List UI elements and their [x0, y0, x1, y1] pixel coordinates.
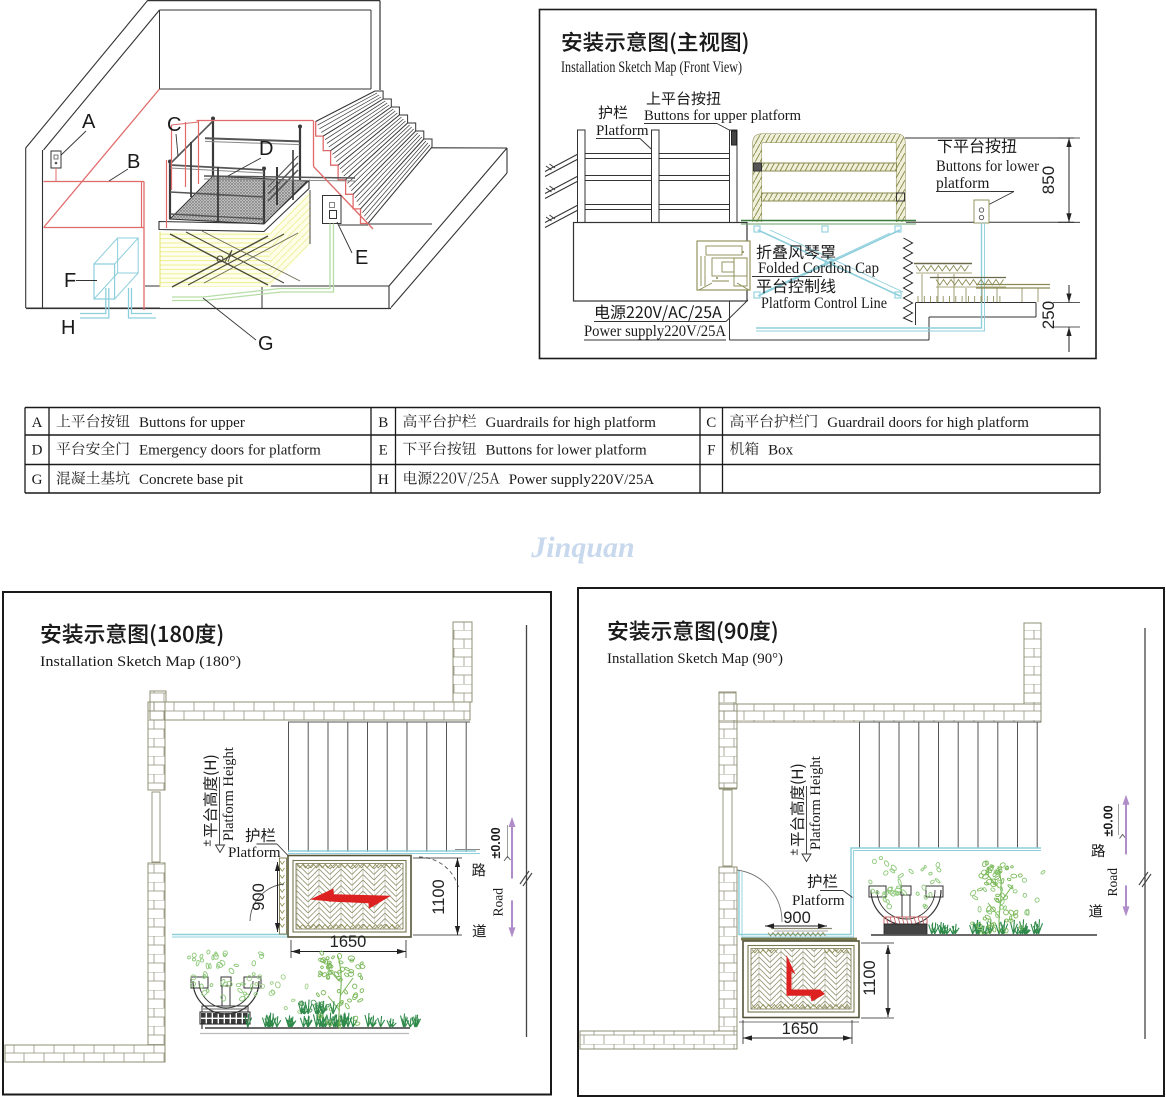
- svg-text:1100: 1100: [861, 960, 879, 995]
- svg-text:±: ±: [200, 840, 214, 847]
- svg-text:G: G: [258, 333, 274, 355]
- svg-text:900: 900: [783, 909, 811, 927]
- svg-text:E: E: [355, 247, 368, 269]
- svg-text:C: C: [706, 415, 716, 431]
- svg-text:Buttons for upper platform: Buttons for upper platform: [644, 108, 801, 124]
- svg-text:Power supply220V/25A: Power supply220V/25A: [509, 472, 655, 488]
- svg-text:B: B: [378, 415, 388, 431]
- svg-text:B: B: [127, 151, 140, 173]
- svg-text:±0.00: ±0.00: [489, 827, 503, 858]
- svg-text:1650: 1650: [330, 933, 367, 951]
- svg-text:Platform Height: Platform Height: [221, 747, 237, 841]
- svg-text:Platform Height: Platform Height: [808, 756, 824, 850]
- svg-text:F: F: [64, 270, 76, 292]
- svg-text:D: D: [32, 443, 43, 459]
- svg-text:Platform: Platform: [596, 123, 649, 139]
- svg-text:Installation Sketch Map (90°): Installation Sketch Map (90°): [607, 651, 783, 667]
- svg-text:C: C: [167, 114, 181, 136]
- svg-text:Platform: Platform: [228, 845, 281, 861]
- svg-text:Installation Sketch Map (Front: Installation Sketch Map (Front View): [561, 59, 742, 76]
- svg-text:Platform: Platform: [792, 893, 845, 909]
- svg-text:A: A: [32, 415, 43, 431]
- svg-text:F: F: [707, 443, 715, 459]
- svg-text:platform: platform: [936, 175, 989, 192]
- svg-text:E: E: [379, 443, 388, 459]
- svg-text:±: ±: [787, 849, 801, 856]
- svg-text:G: G: [32, 472, 43, 488]
- svg-text:Buttons for lower: Buttons for lower: [936, 158, 1040, 175]
- svg-text:H: H: [378, 472, 389, 488]
- svg-text:850: 850: [1039, 166, 1058, 194]
- svg-text:Buttons for upper: Buttons for upper: [139, 415, 245, 431]
- svg-text:1650: 1650: [782, 1020, 819, 1038]
- svg-text:A: A: [82, 111, 96, 133]
- svg-text:Road: Road: [1105, 868, 1120, 897]
- svg-text:900: 900: [250, 883, 268, 911]
- svg-text:Guardrails for high platform: Guardrails for high platform: [486, 415, 657, 431]
- svg-text:Power supply220V/25A: Power supply220V/25A: [584, 323, 727, 340]
- svg-text:Concrete base pit: Concrete base pit: [139, 472, 244, 488]
- svg-text:Platform Control Line: Platform Control Line: [761, 295, 887, 312]
- svg-text:Buttons for lower platform: Buttons for lower platform: [486, 443, 648, 459]
- svg-text:Folded Cordion Cap: Folded Cordion Cap: [758, 260, 879, 277]
- svg-text:H: H: [61, 317, 75, 339]
- svg-text:Road: Road: [491, 888, 506, 917]
- svg-text:250: 250: [1039, 301, 1058, 329]
- svg-text:D: D: [259, 138, 273, 160]
- svg-text:Box: Box: [768, 443, 794, 459]
- svg-text:Guardrail doors for high platf: Guardrail doors for high platform: [827, 415, 1029, 431]
- svg-text:Emergency doors for platform: Emergency doors for platform: [139, 443, 321, 459]
- svg-text:Jinquan: Jinquan: [530, 531, 634, 564]
- svg-text:±0.00: ±0.00: [1102, 805, 1116, 836]
- svg-text:Installation Sketch Map (180°): Installation Sketch Map (180°): [40, 654, 241, 670]
- svg-text:1100: 1100: [430, 879, 448, 914]
